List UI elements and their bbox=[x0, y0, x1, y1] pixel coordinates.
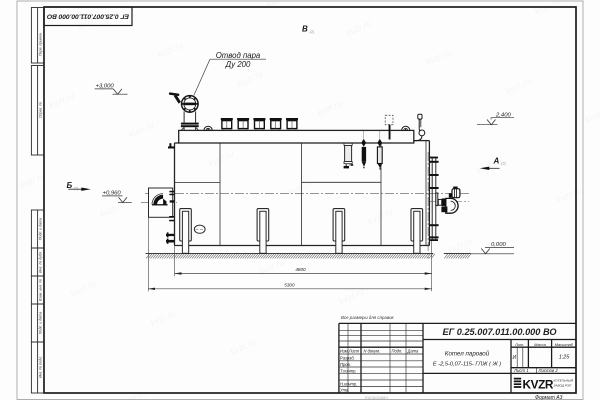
svg-text:Перв. примен.: Перв. примен. bbox=[39, 32, 43, 56]
svg-text:Котел паровой: Котел паровой bbox=[445, 351, 490, 358]
svg-text:Ду 200: Ду 200 bbox=[225, 60, 251, 69]
svg-text:КОТЕЛЬНЫЙ: КОТЕЛЬНЫЙ bbox=[554, 379, 574, 383]
svg-text:Дата: Дата bbox=[407, 349, 420, 354]
svg-text:ЕГ 0.25.007.011.00.000 ВО: ЕГ 0.25.007.011.00.000 ВО bbox=[46, 12, 129, 19]
svg-text:4800: 4800 bbox=[295, 267, 306, 272]
svg-text:Изм.Лист: Изм.Лист bbox=[340, 349, 360, 354]
svg-text:N докум.: N докум. bbox=[364, 349, 381, 354]
svg-text:Подп. и дата: Подп. и дата bbox=[39, 218, 43, 241]
svg-text:Т.контр.: Т.контр. bbox=[340, 368, 357, 373]
svg-text:А: А bbox=[493, 156, 500, 165]
svg-text:Листов 2: Листов 2 bbox=[538, 368, 559, 373]
svg-text:Н.контр.: Н.контр. bbox=[340, 381, 357, 386]
svg-text:ЗАВОД РЭП: ЗАВОД РЭП bbox=[554, 384, 573, 388]
svg-text:(2): (2) bbox=[501, 161, 507, 166]
svg-text:Масштаб: Масштаб bbox=[555, 342, 574, 347]
svg-text:Справ. №: Справ. № bbox=[39, 102, 43, 118]
svg-text:В: В bbox=[302, 25, 308, 34]
svg-text:И: И bbox=[513, 355, 517, 361]
svg-text:Копировал: Копировал bbox=[365, 395, 388, 400]
svg-text:Разраб.: Разраб. bbox=[340, 356, 355, 361]
svg-text:5300: 5300 bbox=[284, 282, 295, 287]
svg-text:Инв. № дубл.: Инв. № дубл. bbox=[39, 251, 43, 273]
svg-text:Б: Б bbox=[67, 181, 73, 190]
svg-text:KVZR: KVZR bbox=[523, 378, 554, 392]
svg-text:Все размеры для справок: Все размеры для справок bbox=[341, 315, 395, 320]
svg-text:ЕГ 0.25.007.011.00.000 ВО: ЕГ 0.25.007.011.00.000 ВО bbox=[442, 327, 556, 337]
svg-text:Отвод пара: Отвод пара bbox=[216, 51, 261, 60]
svg-text:Пров.: Пров. bbox=[340, 362, 351, 367]
svg-text:1:25: 1:25 bbox=[559, 354, 569, 360]
svg-text:Подп.: Подп. bbox=[392, 349, 403, 354]
svg-text:Инв. № подл.: Инв. № подл. bbox=[39, 356, 43, 378]
svg-text:Лист 1: Лист 1 bbox=[513, 368, 529, 373]
svg-text:Утв.: Утв. bbox=[340, 388, 349, 393]
svg-text:0,000: 0,000 bbox=[491, 242, 506, 248]
svg-text:Формат А3: Формат А3 bbox=[535, 395, 563, 400]
svg-text:Лит.: Лит. bbox=[514, 342, 524, 347]
svg-text:Подп. и дата: Подп. и дата bbox=[39, 312, 43, 335]
svg-text:Масса: Масса bbox=[534, 342, 546, 347]
svg-text:Е -2,5-0,07-115- ГЛЖ ( Ж ): Е -2,5-0,07-115- ГЛЖ ( Ж ) bbox=[433, 361, 501, 367]
svg-text:(2): (2) bbox=[310, 29, 316, 34]
svg-text:Взам. инв. №: Взам. инв. № bbox=[39, 279, 43, 301]
